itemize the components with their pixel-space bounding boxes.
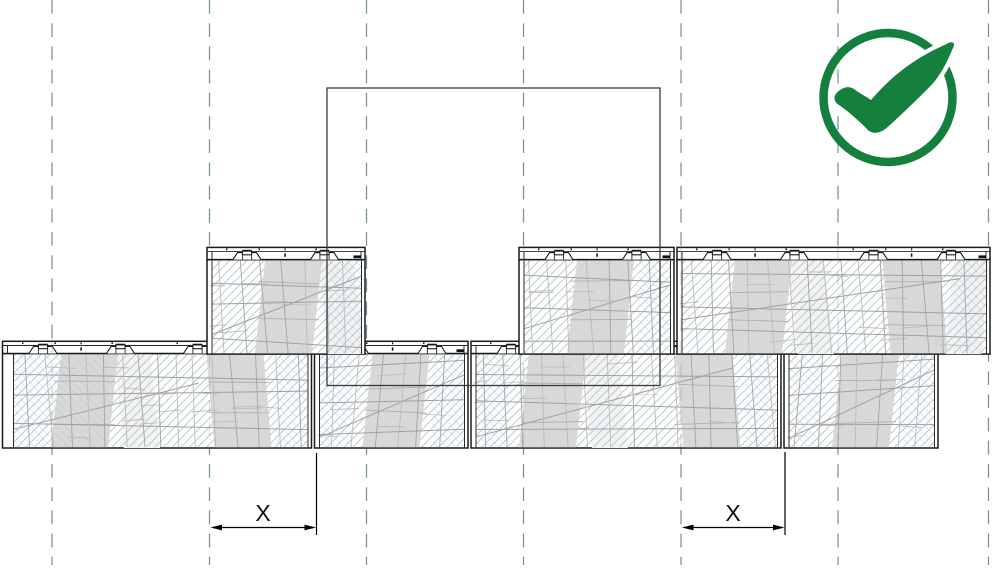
svg-text:X: X: [255, 500, 270, 526]
svg-text:X: X: [725, 500, 740, 526]
